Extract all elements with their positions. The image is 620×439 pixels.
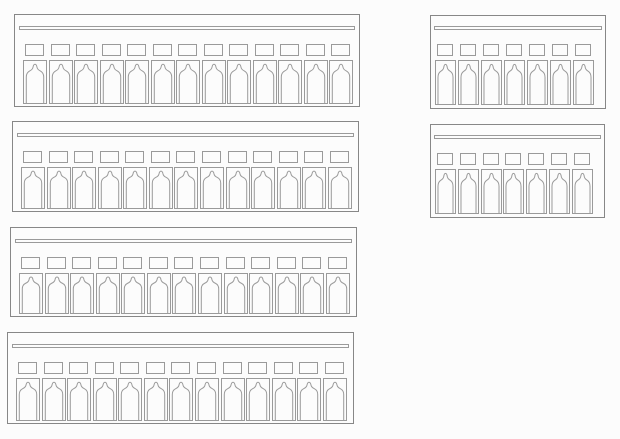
unit-row: [435, 153, 593, 214]
ogee-arch-icon: [20, 274, 42, 313]
unit-row: [23, 44, 353, 104]
ogee-arch-icon: [573, 170, 592, 213]
wire-cavity: [74, 60, 98, 104]
terminal-unit: [49, 44, 73, 104]
terminal-unit: [93, 362, 117, 421]
screw-slot: [229, 44, 248, 56]
terminal-strip-13pos-3: [10, 227, 357, 317]
screw-slot: [47, 257, 66, 269]
screw-slot: [277, 257, 296, 269]
screw-slot: [18, 362, 37, 374]
ogee-arch-icon: [482, 170, 501, 213]
wire-cavity: [326, 273, 350, 314]
ogee-arch-icon: [329, 168, 351, 208]
wire-cavity: [246, 378, 270, 421]
screw-slot: [328, 257, 347, 269]
terminal-unit: [70, 257, 94, 314]
ogee-arch-icon: [459, 170, 478, 213]
terminal-unit: [246, 362, 270, 421]
terminal-unit: [550, 44, 571, 105]
terminal-unit: [174, 151, 198, 209]
terminal-unit: [21, 151, 45, 209]
ogee-arch-icon: [17, 379, 39, 420]
ogee-arch-icon: [46, 274, 68, 313]
ogee-arch-icon: [303, 168, 325, 208]
wire-cavity: [251, 167, 275, 209]
ogee-arch-icon: [305, 61, 327, 103]
ogee-arch-icon: [203, 61, 225, 103]
wire-cavity: [226, 167, 250, 209]
screw-slot: [280, 44, 299, 56]
ogee-arch-icon: [273, 379, 295, 420]
terminal-unit: [253, 44, 277, 104]
terminal-unit: [16, 362, 40, 421]
wire-cavity: [125, 60, 149, 104]
screw-slot: [176, 151, 195, 163]
ogee-arch-icon: [324, 379, 346, 420]
screw-slot: [325, 362, 344, 374]
wire-cavity: [253, 60, 277, 104]
terminal-unit: [573, 44, 594, 105]
ogee-arch-icon: [459, 61, 478, 104]
terminal-unit: [326, 257, 350, 314]
wire-cavity: [572, 169, 593, 214]
wire-cavity: [98, 167, 122, 209]
terminal-unit: [118, 362, 142, 421]
ogee-arch-icon: [254, 61, 276, 103]
ogee-arch-icon: [68, 379, 90, 420]
terminal-unit: [527, 44, 548, 105]
screw-slot: [174, 257, 193, 269]
wire-cavity: [202, 60, 226, 104]
screw-slot: [505, 153, 521, 165]
screw-slot: [98, 257, 117, 269]
terminal-unit: [195, 362, 219, 421]
screw-slot: [299, 362, 318, 374]
ogee-arch-icon: [99, 168, 121, 208]
wire-cavity: [200, 167, 224, 209]
ogee-arch-icon: [276, 274, 298, 313]
wire-cavity: [527, 60, 548, 105]
ogee-arch-icon: [48, 168, 70, 208]
screw-slot: [149, 257, 168, 269]
top-rail: [17, 133, 354, 137]
ogee-arch-icon: [43, 379, 65, 420]
unit-row: [435, 44, 594, 105]
terminal-unit: [221, 362, 245, 421]
wire-cavity: [118, 378, 142, 421]
terminal-unit: [435, 44, 456, 105]
terminal-unit: [176, 44, 200, 104]
top-rail: [15, 239, 352, 243]
screw-slot: [200, 257, 219, 269]
ogee-arch-icon: [574, 61, 593, 104]
terminal-unit: [251, 151, 275, 209]
screw-slot: [460, 44, 476, 56]
screw-slot: [123, 257, 142, 269]
terminal-unit: [572, 153, 593, 214]
screw-slot: [552, 44, 568, 56]
ogee-arch-icon: [196, 379, 218, 420]
screw-slot: [21, 257, 40, 269]
ogee-arch-icon: [170, 379, 192, 420]
terminal-unit: [302, 151, 326, 209]
terminal-unit: [458, 153, 479, 214]
terminal-unit: [147, 257, 171, 314]
ogee-arch-icon: [504, 170, 523, 213]
ogee-arch-icon: [550, 170, 569, 213]
screw-slot: [49, 151, 68, 163]
terminal-strip-13pos-2: [12, 121, 359, 212]
ogee-arch-icon: [97, 274, 119, 313]
wire-cavity: [42, 378, 66, 421]
ogee-arch-icon: [71, 274, 93, 313]
ogee-arch-icon: [225, 274, 247, 313]
screw-slot: [102, 44, 121, 56]
terminal-strip-13pos-4: [7, 332, 354, 424]
screw-slot: [226, 257, 245, 269]
wire-cavity: [221, 378, 245, 421]
top-rail: [434, 26, 602, 30]
screw-slot: [574, 153, 590, 165]
terminal-unit: [249, 257, 273, 314]
wire-cavity: [174, 167, 198, 209]
wire-cavity: [227, 60, 251, 104]
terminal-unit: [123, 151, 147, 209]
terminal-unit: [481, 153, 502, 214]
wire-cavity: [45, 273, 69, 314]
wire-cavity: [151, 60, 175, 104]
terminal-unit: [96, 257, 120, 314]
wire-cavity: [550, 60, 571, 105]
terminal-unit: [72, 151, 96, 209]
terminal-unit: [323, 362, 347, 421]
screw-slot: [437, 153, 453, 165]
unit-row: [21, 151, 352, 209]
ogee-arch-icon: [505, 61, 524, 104]
screw-slot: [223, 362, 242, 374]
wire-cavity: [23, 60, 47, 104]
terminal-unit: [328, 151, 352, 209]
wire-cavity: [49, 60, 73, 104]
ogee-arch-icon: [152, 61, 174, 103]
ogee-arch-icon: [436, 170, 455, 213]
terminal-unit: [526, 153, 547, 214]
screw-slot: [153, 44, 172, 56]
wire-cavity: [278, 60, 302, 104]
screw-slot: [178, 44, 197, 56]
screw-slot: [100, 151, 119, 163]
screw-slot: [197, 362, 216, 374]
terminal-unit: [23, 44, 47, 104]
terminal-unit: [304, 44, 328, 104]
unit-row: [16, 362, 347, 421]
screw-slot: [274, 362, 293, 374]
terminal-unit: [300, 257, 324, 314]
wire-cavity: [458, 60, 479, 105]
screw-slot: [44, 362, 63, 374]
screw-slot: [146, 362, 165, 374]
screw-slot: [528, 153, 544, 165]
screw-slot: [506, 44, 522, 56]
ogee-arch-icon: [145, 379, 167, 420]
terminal-unit: [549, 153, 570, 214]
ogee-arch-icon: [528, 61, 547, 104]
ogee-arch-icon: [330, 61, 352, 103]
wire-cavity: [198, 273, 222, 314]
screw-slot: [255, 44, 274, 56]
wire-cavity: [458, 169, 479, 214]
wire-cavity: [481, 60, 502, 105]
terminal-unit: [226, 151, 250, 209]
screw-slot: [23, 151, 42, 163]
ogee-arch-icon: [94, 379, 116, 420]
screw-slot: [120, 362, 139, 374]
ogee-arch-icon: [75, 61, 97, 103]
screw-slot: [228, 151, 247, 163]
wire-cavity: [435, 169, 456, 214]
ogee-arch-icon: [279, 61, 301, 103]
ogee-arch-icon: [327, 274, 349, 313]
screw-slot: [575, 44, 591, 56]
wire-cavity: [123, 167, 147, 209]
terminal-unit: [435, 153, 456, 214]
screw-slot: [171, 362, 190, 374]
screw-slot: [95, 362, 114, 374]
screw-slot: [69, 362, 88, 374]
terminal-unit: [458, 44, 479, 105]
wire-cavity: [96, 273, 120, 314]
terminal-unit: [272, 362, 296, 421]
wire-cavity: [144, 378, 168, 421]
ogee-arch-icon: [222, 379, 244, 420]
ogee-arch-icon: [126, 61, 148, 103]
wire-cavity: [176, 60, 200, 104]
ogee-arch-icon: [119, 379, 141, 420]
terminal-unit: [45, 257, 69, 314]
ogee-arch-icon: [50, 61, 72, 103]
terminal-unit: [42, 362, 66, 421]
screw-slot: [72, 257, 91, 269]
terminal-unit: [198, 257, 222, 314]
wire-cavity: [72, 167, 96, 209]
terminal-unit: [149, 151, 173, 209]
terminal-strip-7pos-1: [430, 15, 606, 109]
wire-cavity: [573, 60, 594, 105]
terminal-unit: [67, 362, 91, 421]
wire-cavity: [100, 60, 124, 104]
ogee-arch-icon: [551, 61, 570, 104]
ogee-arch-icon: [124, 168, 146, 208]
ogee-arch-icon: [436, 61, 455, 104]
wire-cavity: [526, 169, 547, 214]
screw-slot: [51, 44, 70, 56]
terminal-unit: [74, 44, 98, 104]
wire-cavity: [149, 167, 173, 209]
terminal-unit: [121, 257, 145, 314]
terminal-strip-13pos-1: [14, 14, 360, 107]
ogee-arch-icon: [247, 379, 269, 420]
ogee-arch-icon: [201, 168, 223, 208]
terminal-unit: [98, 151, 122, 209]
screw-slot: [551, 153, 567, 165]
terminal-unit: [151, 44, 175, 104]
screw-slot: [74, 151, 93, 163]
wire-cavity: [503, 169, 524, 214]
terminal-unit: [19, 257, 43, 314]
terminal-unit: [47, 151, 71, 209]
ogee-arch-icon: [228, 61, 250, 103]
ogee-arch-icon: [73, 168, 95, 208]
screw-slot: [127, 44, 146, 56]
ogee-arch-icon: [150, 168, 172, 208]
screw-slot: [306, 44, 325, 56]
ogee-arch-icon: [122, 274, 144, 313]
top-rail: [434, 135, 601, 139]
wire-cavity: [435, 60, 456, 105]
terminal-unit: [144, 362, 168, 421]
ogee-arch-icon: [301, 274, 323, 313]
terminal-unit: [329, 44, 353, 104]
wire-cavity: [21, 167, 45, 209]
ogee-arch-icon: [24, 61, 46, 103]
ogee-arch-icon: [252, 168, 274, 208]
ogee-arch-icon: [22, 168, 44, 208]
ogee-arch-icon: [177, 61, 199, 103]
wire-cavity: [70, 273, 94, 314]
screw-slot: [251, 257, 270, 269]
wire-cavity: [304, 60, 328, 104]
screw-slot: [304, 151, 323, 163]
terminal-unit: [504, 44, 525, 105]
terminal-unit: [503, 153, 524, 214]
wire-cavity: [323, 378, 347, 421]
terminal-unit: [100, 44, 124, 104]
ogee-arch-icon: [527, 170, 546, 213]
ogee-arch-icon: [101, 61, 123, 103]
screw-slot: [331, 44, 350, 56]
terminal-unit: [277, 151, 301, 209]
wire-cavity: [277, 167, 301, 209]
ogee-arch-icon: [250, 274, 272, 313]
wire-cavity: [249, 273, 273, 314]
terminal-unit: [481, 44, 502, 105]
terminal-unit: [297, 362, 321, 421]
screw-slot: [25, 44, 44, 56]
screw-slot: [330, 151, 349, 163]
ogee-arch-icon: [175, 168, 197, 208]
ogee-arch-icon: [199, 274, 221, 313]
screw-slot: [302, 257, 321, 269]
terminal-strip-7pos-2: [430, 124, 605, 218]
wire-cavity: [195, 378, 219, 421]
wire-cavity: [172, 273, 196, 314]
wire-cavity: [329, 60, 353, 104]
terminal-unit: [202, 44, 226, 104]
screw-slot: [125, 151, 144, 163]
ogee-arch-icon: [298, 379, 320, 420]
wire-cavity: [67, 378, 91, 421]
screw-slot: [202, 151, 221, 163]
ogee-arch-icon: [227, 168, 249, 208]
wire-cavity: [147, 273, 171, 314]
wire-cavity: [272, 378, 296, 421]
terminal-unit: [169, 362, 193, 421]
wire-cavity: [169, 378, 193, 421]
wire-cavity: [504, 60, 525, 105]
screw-slot: [253, 151, 272, 163]
screw-slot: [204, 44, 223, 56]
top-rail: [19, 26, 355, 30]
screw-slot: [151, 151, 170, 163]
terminal-unit: [200, 151, 224, 209]
screw-slot: [76, 44, 95, 56]
wire-cavity: [16, 378, 40, 421]
wire-cavity: [47, 167, 71, 209]
terminal-unit: [278, 44, 302, 104]
terminal-unit: [125, 44, 149, 104]
ogee-arch-icon: [148, 274, 170, 313]
ogee-arch-icon: [482, 61, 501, 104]
wire-cavity: [302, 167, 326, 209]
wire-cavity: [328, 167, 352, 209]
terminal-unit: [172, 257, 196, 314]
screw-slot: [529, 44, 545, 56]
wire-cavity: [19, 273, 43, 314]
terminal-unit: [224, 257, 248, 314]
ogee-arch-icon: [173, 274, 195, 313]
wire-cavity: [481, 169, 502, 214]
technical-drawing-canvas: [0, 0, 620, 439]
wire-cavity: [549, 169, 570, 214]
top-rail: [12, 344, 349, 348]
wire-cavity: [275, 273, 299, 314]
screw-slot: [437, 44, 453, 56]
wire-cavity: [297, 378, 321, 421]
wire-cavity: [121, 273, 145, 314]
terminal-unit: [275, 257, 299, 314]
unit-row: [19, 257, 350, 314]
screw-slot: [460, 153, 476, 165]
wire-cavity: [224, 273, 248, 314]
ogee-arch-icon: [278, 168, 300, 208]
terminal-unit: [227, 44, 251, 104]
screw-slot: [483, 153, 499, 165]
wire-cavity: [300, 273, 324, 314]
wire-cavity: [93, 378, 117, 421]
screw-slot: [248, 362, 267, 374]
screw-slot: [483, 44, 499, 56]
screw-slot: [279, 151, 298, 163]
